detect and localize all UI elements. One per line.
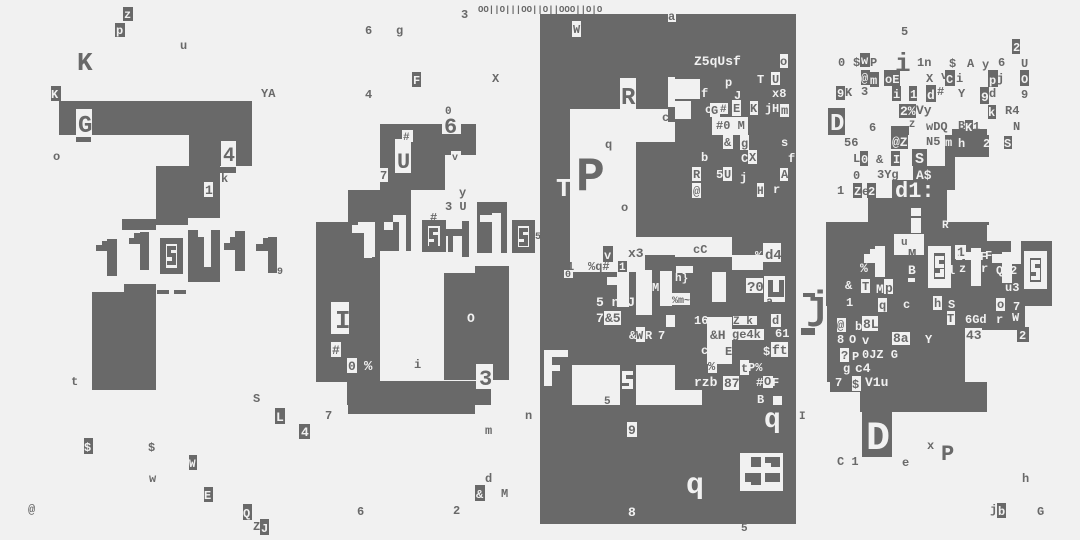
svg-text:w: w [861,54,869,68]
svg-text:M: M [652,281,659,295]
svg-text:q: q [605,138,612,152]
svg-text:$: $ [853,56,860,70]
svg-text:B: B [908,263,916,278]
svg-text:W: W [1012,311,1020,325]
svg-text:O: O [764,375,771,389]
svg-text:1: 1 [955,249,963,264]
svg-text:p: p [116,24,123,38]
svg-text:7: 7 [380,169,387,183]
svg-text:5: 5 [741,523,748,535]
svg-text:c: c [662,111,669,125]
svg-text:p: p [989,74,996,88]
svg-text:O: O [849,333,856,347]
svg-text:j: j [740,171,747,185]
svg-text:D: D [866,417,890,462]
svg-text:O: O [1021,73,1028,87]
svg-text:K: K [750,102,758,116]
svg-text:c4: c4 [855,361,871,376]
svg-text:%: % [708,360,716,374]
svg-text:o: o [621,201,628,215]
svg-text:R: R [621,85,636,112]
svg-text:ft: ft [772,343,788,358]
svg-text:v: v [941,71,948,83]
svg-text:o: o [997,298,1004,312]
svg-text:S: S [948,298,955,312]
svg-text:d1:: d1: [895,179,935,204]
svg-text:x3: x3 [628,246,644,261]
svg-text:7: 7 [835,376,842,390]
svg-text:4: 4 [301,425,309,440]
svg-text:6: 6 [444,115,457,140]
svg-text:W: W [573,23,581,37]
svg-text:q: q [686,469,704,503]
svg-text:Z: Z [854,185,861,199]
svg-text:$: $ [949,57,956,71]
svg-text:7: 7 [658,329,665,343]
svg-text:wDQ: wDQ [926,120,948,134]
svg-text:m: m [781,104,788,118]
svg-text:x: x [927,439,934,453]
svg-text:g: g [843,362,850,376]
svg-text:#0 M: #0 M [716,119,745,133]
svg-text:k: k [221,172,228,186]
svg-text:u: u [901,237,908,249]
svg-text:K: K [51,88,59,102]
svg-text:d: d [989,87,996,101]
svg-text:#: # [332,343,340,358]
svg-text:j: j [997,72,1004,86]
svg-text:R: R [693,168,701,182]
svg-text:@: @ [861,72,868,86]
svg-text:K: K [845,86,853,100]
svg-text:u3: u3 [1005,281,1019,295]
svg-text:R: R [645,329,653,343]
svg-text:i: i [414,358,421,372]
svg-text:v: v [862,334,869,348]
svg-text:N: N [1013,120,1020,134]
svg-text:y: y [982,58,989,72]
svg-text:$: $ [852,378,859,392]
svg-text:u: u [180,39,187,53]
svg-text:9: 9 [277,267,283,278]
svg-text:5: 5 [535,232,541,243]
svg-text:C: C [741,152,748,166]
svg-text:4: 4 [365,88,372,102]
svg-text:l: l [948,264,955,278]
svg-text:G: G [1037,505,1044,519]
svg-text:9: 9 [628,423,636,438]
svg-text:M: M [908,247,916,263]
svg-text:3 U: 3 U [445,200,467,214]
svg-text:5: 5 [901,25,908,39]
svg-text:c: c [903,298,910,312]
svg-text:#: # [403,132,410,144]
svg-text:2: 2 [1013,41,1020,55]
svg-text:6Gd: 6Gd [965,313,987,327]
svg-text:@Z: @Z [892,135,908,150]
svg-text:g: g [396,24,403,38]
svg-text:e: e [902,456,909,470]
svg-text:56: 56 [844,136,858,150]
svg-text:U: U [772,73,779,87]
svg-text:?0: ?0 [747,280,764,296]
svg-text:d: d [927,88,935,103]
svg-text:2: 2 [1010,264,1017,278]
svg-text:M: M [501,487,508,501]
svg-text:p: p [725,76,732,90]
svg-text:b: b [998,505,1005,519]
svg-text:9: 9 [981,90,989,105]
svg-text:q: q [879,299,886,313]
svg-text:t: t [71,375,78,389]
svg-text:g: g [741,137,748,151]
svg-text:z: z [124,8,131,22]
svg-text:F: F [772,376,779,390]
svg-text:E: E [204,489,211,503]
svg-text:G: G [78,113,92,140]
svg-text:D: D [830,111,844,138]
svg-text:O: O [467,311,475,326]
svg-text:#: # [430,211,437,225]
svg-text:9: 9 [837,87,844,101]
svg-text:&: & [876,153,884,167]
svg-text:G: G [711,104,718,118]
svg-text:R4: R4 [1005,104,1019,118]
svg-text:H: H [757,186,764,198]
svg-text:YA: YA [261,87,276,101]
svg-text:p: p [885,281,893,296]
svg-text:2%: 2% [900,104,916,119]
svg-text:1: 1 [205,183,213,198]
svg-text:?: ? [841,349,848,363]
svg-text:&H: &H [710,328,726,343]
svg-text:r: r [773,183,780,197]
svg-text:Z5qUsf: Z5qUsf [694,54,741,69]
svg-text:6: 6 [357,505,364,519]
svg-text:H: H [772,102,779,116]
svg-text:Q: Q [996,264,1003,278]
svg-text:OO||O|||OO||O||OOO||O|O: OO||O|||OO||O||OOO||O|O [478,5,603,15]
svg-text:@: @ [837,319,844,333]
svg-text:P: P [870,56,877,70]
svg-text:T: T [556,174,572,204]
svg-text:0JZ G: 0JZ G [862,348,898,362]
svg-text:6: 6 [869,121,876,135]
svg-text:1: 1 [619,262,626,274]
svg-text:Z: Z [909,120,915,131]
svg-text:4: 4 [223,145,235,168]
svg-text:43: 43 [966,328,982,343]
svg-text:%q#: %q# [588,260,610,274]
svg-text:%m~: %m~ [672,296,690,307]
svg-text:0: 0 [348,359,356,374]
svg-text:z: z [959,262,966,276]
svg-text:A: A [967,57,975,71]
svg-text:q: q [764,405,781,436]
svg-text:J: J [734,89,741,103]
svg-text:7: 7 [596,311,604,326]
svg-text:X: X [749,151,757,165]
svg-text:a: a [766,295,773,309]
svg-text:j: j [990,503,997,517]
svg-text:Vy: Vy [916,103,932,118]
svg-text:0: 0 [861,153,868,167]
svg-text:@: @ [28,503,35,517]
svg-text:rzb: rzb [694,375,718,390]
svg-text:1: 1 [846,296,853,310]
svg-text:ge4k: ge4k [732,328,761,342]
svg-text:87: 87 [724,376,740,391]
svg-text:1: 1 [973,120,980,134]
svg-text:d: d [772,314,779,328]
svg-text:L: L [853,152,860,166]
svg-text:R: R [942,220,949,232]
svg-text:T: T [757,73,764,87]
svg-text:A: A [781,168,789,182]
svg-text:V1u: V1u [865,375,888,390]
svg-text:h: h [958,137,965,151]
svg-text:i: i [956,72,963,86]
svg-text:v: v [452,153,458,164]
svg-text:6: 6 [365,24,372,38]
svg-text:#: # [937,85,944,99]
svg-text:o: o [780,55,787,69]
svg-text:#: # [720,104,727,116]
svg-text:8a: 8a [893,331,909,346]
svg-text:J: J [261,522,268,536]
svg-text:f: f [788,152,795,166]
svg-text:S: S [1004,137,1011,151]
svg-text:$: $ [148,441,155,455]
svg-text:N5: N5 [926,135,940,149]
svg-text:r: r [981,262,988,276]
svg-text:7: 7 [325,409,332,423]
svg-text:W: W [189,459,196,471]
svg-text:U: U [397,150,410,175]
svg-text:s: s [781,136,788,150]
svg-text:F: F [413,74,420,88]
svg-text:m: m [485,424,492,438]
svg-text:S: S [915,151,924,168]
svg-text:&: & [476,488,484,502]
svg-text:$: $ [763,345,770,359]
svg-text:I: I [893,153,900,167]
svg-text:S: S [253,392,260,406]
svg-text:2: 2 [983,137,990,151]
svg-text:h: h [934,297,941,311]
svg-text:P: P [576,151,605,205]
svg-text:5 n J: 5 n J [596,295,635,310]
svg-text:1: 1 [837,184,844,198]
svg-text:I: I [799,411,806,423]
svg-text:1n: 1n [917,56,931,70]
svg-text:E: E [733,102,740,116]
svg-text:m: m [945,136,952,150]
svg-text:5: 5 [604,396,611,408]
svg-text:0: 0 [838,56,845,70]
svg-text:b: b [855,320,862,334]
svg-text:F: F [980,250,987,264]
svg-text:3: 3 [479,367,492,392]
svg-text:3Yg: 3Yg [877,168,899,182]
svg-text:h}: h} [675,273,688,285]
svg-text:i: i [893,88,900,102]
svg-text:h: h [1022,472,1029,486]
svg-text:Y: Y [958,87,966,101]
svg-text:oE: oE [885,73,899,87]
svg-text:X: X [492,72,500,86]
svg-text:Z k: Z k [733,316,753,328]
svg-text:16: 16 [694,314,708,328]
svg-text:3: 3 [861,85,868,99]
svg-text:j: j [806,286,830,331]
svg-text:&: & [724,136,732,150]
svg-text:U: U [724,168,731,182]
svg-text:P: P [941,442,954,467]
svg-text:r: r [996,313,1003,327]
svg-text:I: I [335,306,351,336]
svg-text:&5: &5 [605,311,621,326]
svg-text:6: 6 [998,56,1005,70]
svg-text:x8: x8 [772,87,786,101]
svg-text:3: 3 [461,8,468,22]
svg-text:X: X [926,72,934,86]
svg-text:y: y [459,186,466,200]
svg-text:n: n [525,409,532,423]
svg-text:K: K [77,48,93,78]
svg-text:2: 2 [453,504,460,518]
svg-text:$: $ [84,441,91,455]
svg-text:5: 5 [716,168,723,182]
svg-text:9: 9 [1021,88,1028,102]
svg-text:Y: Y [925,333,933,347]
svg-text:0: 0 [565,270,571,281]
svg-text:L: L [276,410,284,425]
svg-text:#: # [756,376,763,390]
svg-text:w: w [149,472,157,486]
svg-text:8: 8 [837,333,844,347]
svg-text:W: W [636,329,644,343]
svg-text:61: 61 [775,327,789,341]
svg-text:U: U [1021,57,1028,71]
svg-text:0: 0 [853,169,860,183]
svg-text:T: T [947,312,954,326]
svg-text:c: c [701,344,708,358]
svg-text:m: m [870,74,877,88]
svg-text:P%: P% [748,361,763,375]
svg-text:%: % [860,261,868,276]
svg-text:K: K [965,121,973,135]
svg-text:b: b [701,151,708,165]
svg-text:k: k [988,106,995,120]
svg-text:%: % [755,249,763,263]
svg-text:%: % [364,359,373,375]
svg-text:C 1: C 1 [837,455,859,469]
svg-text:d: d [485,472,492,486]
svg-text:8L: 8L [863,317,879,332]
svg-text:o: o [53,150,60,164]
svg-text:E: E [725,345,732,359]
svg-text:Q: Q [243,507,250,521]
svg-text:f: f [701,87,708,101]
svg-text:Z: Z [253,520,260,534]
svg-text:1: 1 [910,88,917,102]
svg-text:8: 8 [628,505,636,520]
svg-text:cC: cC [693,243,707,257]
svg-text:T: T [862,280,869,294]
svg-text:2: 2 [868,185,875,199]
svg-text:M: M [876,282,884,297]
svg-text:&: & [845,279,853,293]
svg-text:@: @ [693,185,700,199]
svg-text:2: 2 [1019,329,1026,343]
svg-text:d4: d4 [765,248,782,264]
svg-text:a: a [668,10,675,24]
